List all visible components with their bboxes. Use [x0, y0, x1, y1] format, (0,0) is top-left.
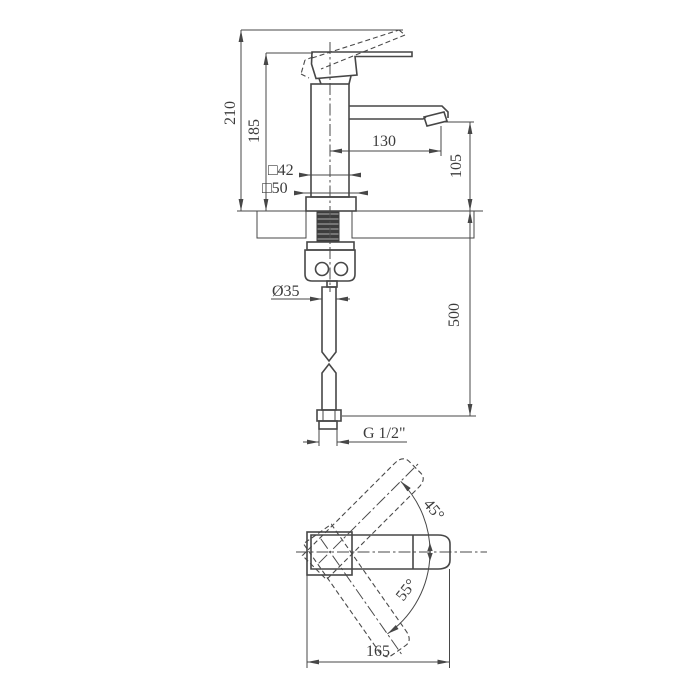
stud-hole-left — [316, 263, 329, 276]
hose-outlet — [327, 281, 337, 287]
hose-upper — [322, 287, 336, 361]
dim-label-50: □50 — [262, 180, 288, 197]
dim-body-section: □42 — [268, 162, 361, 179]
dim-label-210: 210 — [222, 101, 239, 125]
hose-lower — [322, 364, 336, 410]
dim-label-thread: G 1/2" — [363, 425, 406, 442]
dim-label-500: 500 — [446, 303, 463, 327]
dim-label-55deg: 55° — [393, 576, 420, 604]
dim-overall-length: 165 — [307, 569, 450, 668]
hose-fitting — [317, 410, 341, 429]
stud-hole-right — [335, 263, 348, 276]
base-plinth — [306, 197, 356, 211]
dim-hose-length: 500 — [342, 211, 476, 416]
faucet-dimension-drawing: 210 185 130 105 500 — [0, 0, 700, 700]
dim-label-42: □42 — [268, 162, 294, 179]
dim-base-section: □50 — [262, 180, 368, 197]
top-view: 45° 55° 165 — [296, 451, 487, 668]
dim-spout-height: 105 — [443, 122, 474, 211]
spout — [349, 106, 448, 126]
dim-label-35: Ø35 — [272, 283, 300, 300]
dim-label-185: 185 — [246, 119, 263, 143]
lever-handle-front — [312, 52, 413, 79]
front-view: 210 185 130 105 500 — [222, 30, 483, 446]
dim-label-45deg: 45° — [420, 496, 447, 524]
dim-spout-reach: 130 — [330, 126, 441, 156]
lever-raised-dashed — [301, 30, 405, 78]
aerator — [424, 112, 447, 126]
threaded-shank — [317, 211, 339, 242]
dim-label-165: 165 — [366, 643, 390, 660]
dim-shank-diameter: Ø35 — [271, 283, 350, 300]
countertop-section — [237, 211, 483, 238]
lever-swung-up-dashed — [302, 451, 431, 580]
technical-drawing-canvas: 210 185 130 105 500 — [0, 0, 700, 700]
dim-label-130: 130 — [372, 133, 396, 150]
dim-label-105: 105 — [448, 154, 465, 178]
